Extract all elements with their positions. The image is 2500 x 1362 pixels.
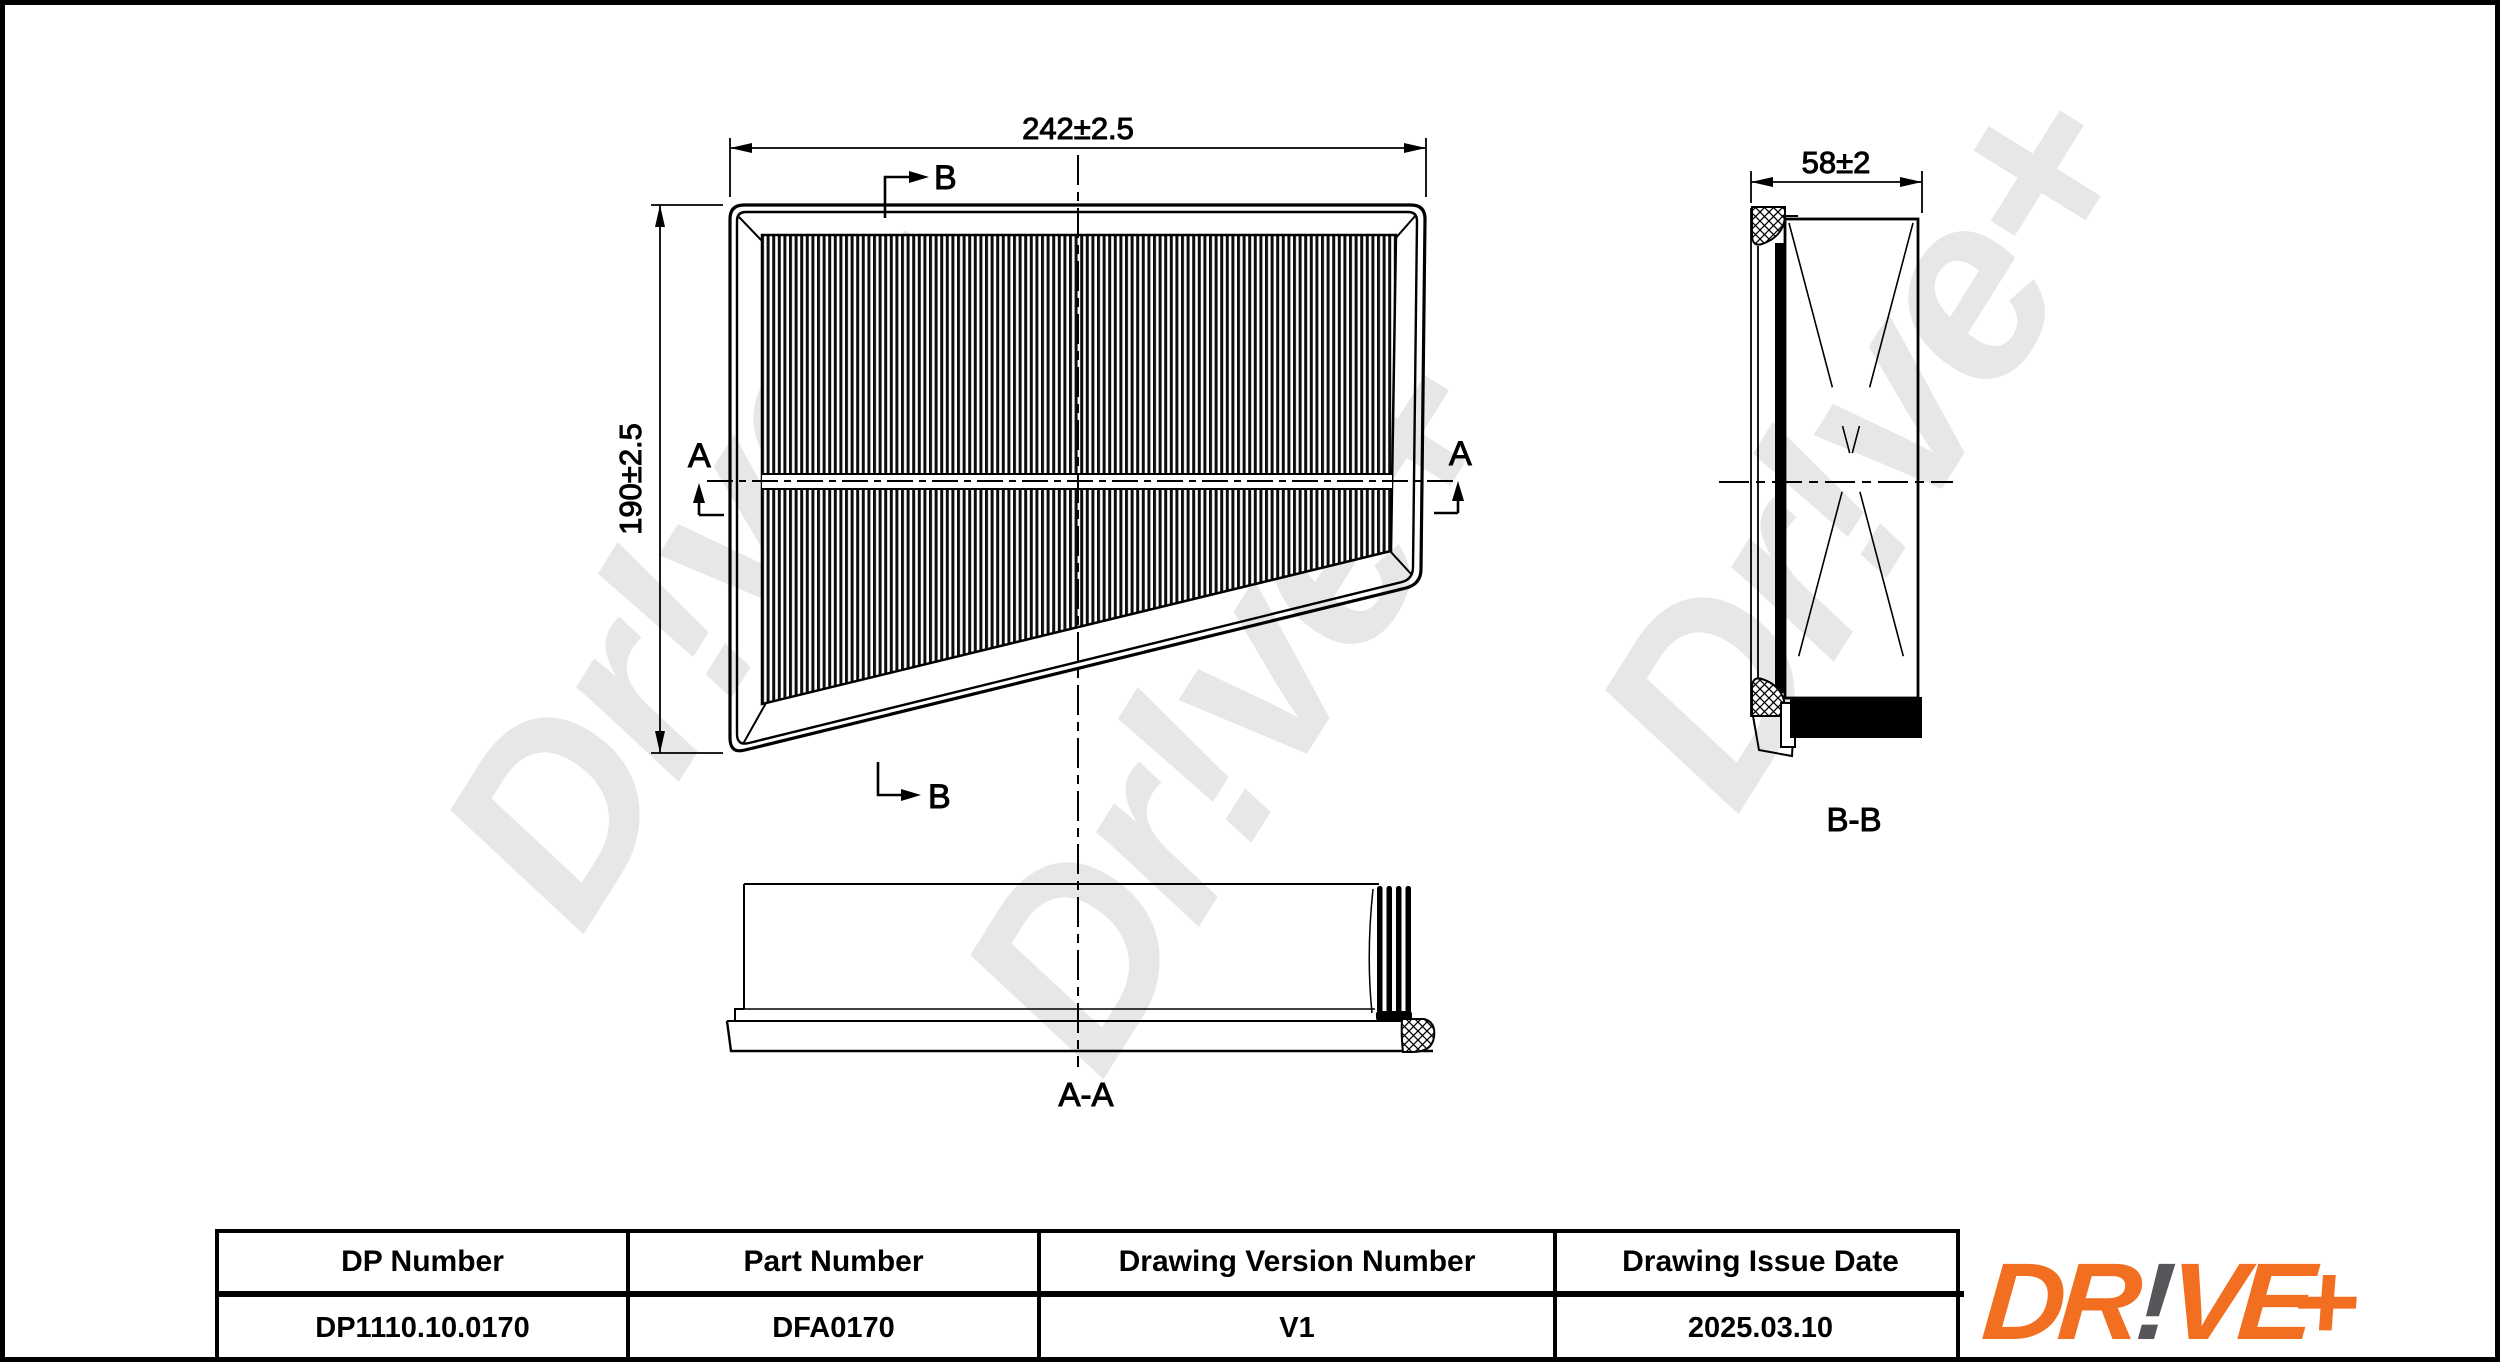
value-issue-date: 2025.03.10: [1557, 1297, 1964, 1359]
logo-plus: +: [2288, 1246, 2356, 1355]
title-block-table: DP Number Part Number Drawing Version Nu…: [215, 1229, 1960, 1361]
gasket-top: [1752, 207, 1785, 245]
front-view: [707, 155, 1453, 1067]
section-marker-a-right: A: [1434, 435, 1472, 513]
aa-gasket: [1402, 1019, 1435, 1052]
value-dp-number: DP1110.10.0170: [219, 1297, 630, 1359]
dim-height-text: 190±2.5: [613, 423, 648, 535]
bb-media-body: [1785, 219, 1918, 698]
header-drawing-version: Drawing Version Number: [1041, 1233, 1557, 1297]
technical-drawing-canvas: 242±2.5 190±2.5 B B A A: [5, 5, 2500, 1362]
section-view-bb: 58±2 B-B: [1719, 145, 1953, 838]
section-marker-b-bottom: B: [878, 762, 951, 816]
logo-dr: DR: [1979, 1246, 2138, 1355]
header-part-number: Part Number: [630, 1233, 1041, 1297]
header-issue-date: Drawing Issue Date: [1557, 1233, 1964, 1297]
dimension-height: 190±2.5: [613, 205, 723, 753]
section-letter-b: B: [934, 159, 957, 197]
drive-plus-logo: DR!VE+: [1979, 1246, 2500, 1356]
value-part-number: DFA0170: [630, 1297, 1041, 1359]
section-marker-b-top: B: [885, 159, 957, 218]
section-letter-b: B: [928, 778, 951, 816]
value-drawing-version: V1: [1041, 1297, 1557, 1359]
section-view-aa: A-A: [727, 884, 1434, 1113]
section-letter-a: A: [688, 437, 711, 475]
dim-bb-text: 58±2: [1802, 145, 1871, 180]
drawing-sheet: Dr!ve+ Dr!ve+ Dr!ve+: [0, 0, 2500, 1362]
dim-width-text: 242±2.5: [1022, 111, 1134, 146]
bb-label: B-B: [1826, 801, 1881, 838]
section-marker-a-left: A: [688, 437, 724, 515]
section-letter-a: A: [1449, 435, 1472, 473]
header-dp-number: DP Number: [219, 1233, 630, 1297]
aa-label: A-A: [1058, 1076, 1113, 1113]
